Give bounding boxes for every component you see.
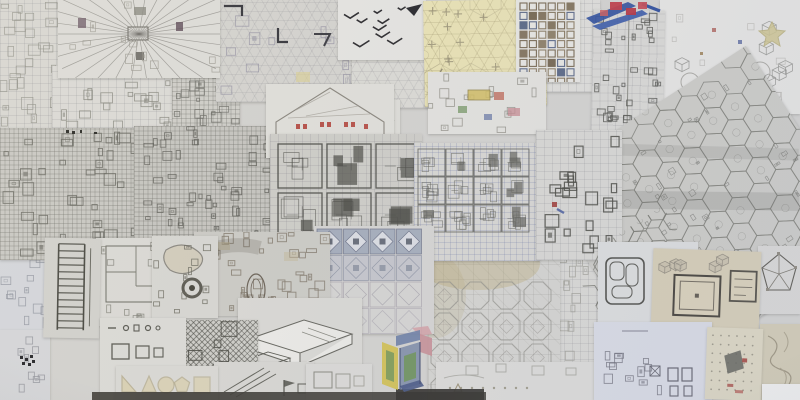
sheet-square-grid <box>516 0 580 82</box>
sheet-square-grid-art <box>516 0 580 82</box>
white-corner-card <box>762 384 800 400</box>
sheet-blue-plan-cards <box>594 322 712 400</box>
collage-wall <box>0 0 800 400</box>
sheet-dotgrid-red-art <box>705 327 763 400</box>
paper-color-cube <box>376 326 434 396</box>
sheet-perspective-room-art <box>58 0 220 78</box>
sheet-bird-marks <box>338 0 426 60</box>
drawings-collage-photo <box>0 0 800 400</box>
sheet-bl-corner-art <box>0 330 50 400</box>
sheet-dotgrid-red <box>705 327 763 400</box>
sheet-bird-marks-art <box>338 0 426 60</box>
sheet-pentagon-diagram <box>758 246 800 314</box>
sheet-bl-ladder-art <box>43 238 101 339</box>
paper-red-blue-structure <box>582 0 662 32</box>
paper-red-blue-structure-art <box>582 0 662 32</box>
sheet-bl-blob-gear <box>152 236 218 318</box>
paper-color-cube-art <box>376 326 434 396</box>
sheet-furniture-plan-art <box>428 72 546 134</box>
sheet-bl-corner <box>0 330 50 400</box>
sheet-pentagon-diagram-art <box>758 246 800 314</box>
sheet-perspective-room <box>58 0 220 78</box>
sheet-bl-blob-gear-art <box>152 236 218 318</box>
sheet-furniture-plan <box>428 72 546 134</box>
sheet-blue-plan-cards-art <box>594 322 712 400</box>
sheet-bl-ladder <box>43 238 101 339</box>
